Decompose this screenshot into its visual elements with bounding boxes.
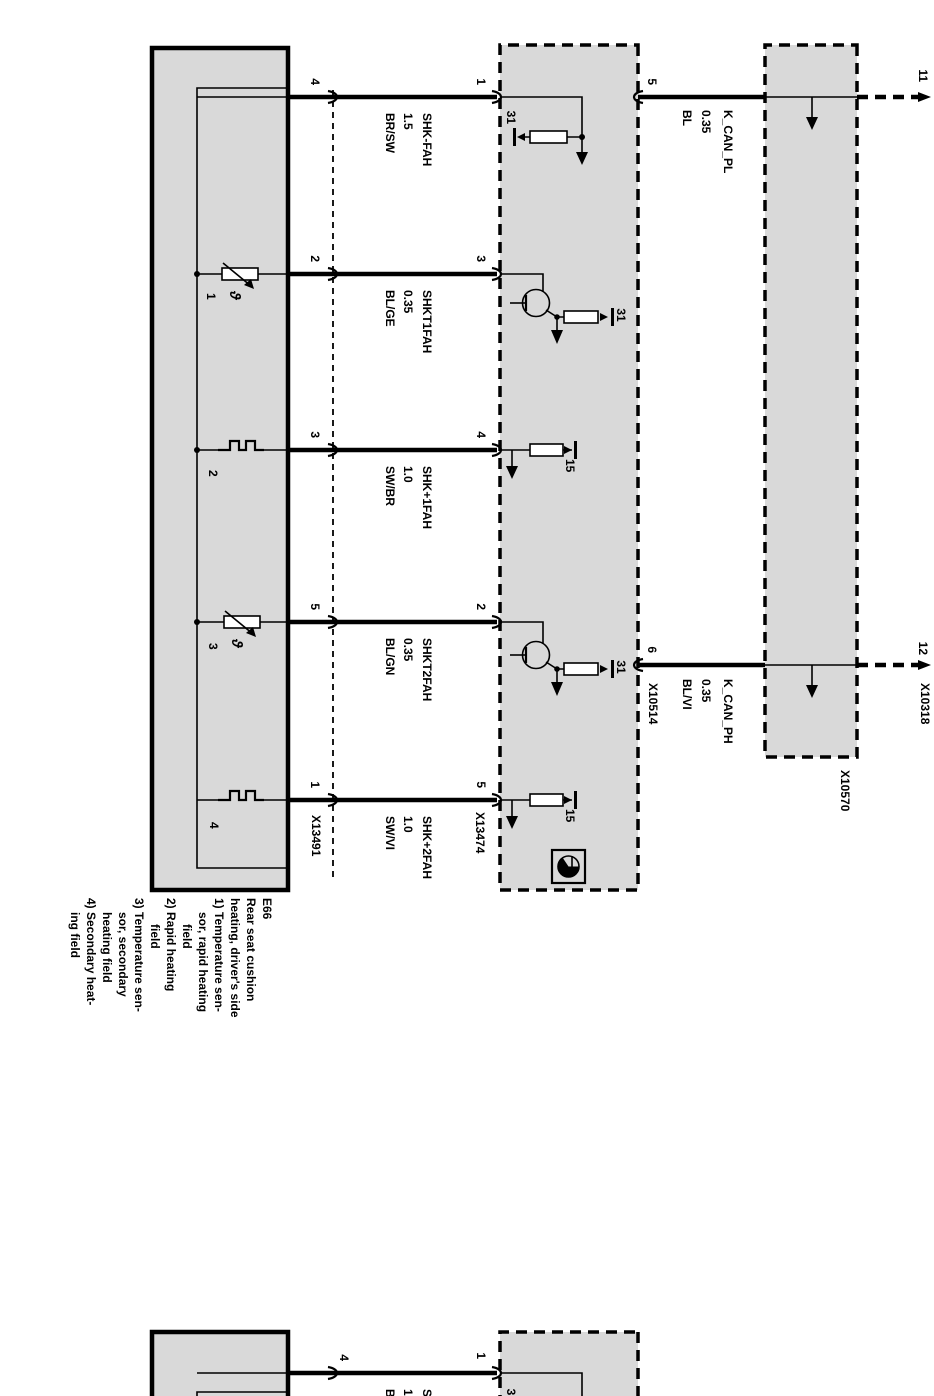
e66-pin-number: 1: [308, 781, 322, 788]
e66-legend: E66 Rear seat cushion heating, driver's …: [68, 898, 274, 1018]
connector-label-x13474: X13474: [473, 812, 487, 854]
wire-name: SHKT1FAH: [420, 290, 434, 353]
terminal-31-label: 31: [504, 111, 518, 125]
legend-line: 3) Temperature sen-: [132, 898, 146, 1012]
legend-line: 2) Rapid heating: [164, 898, 178, 991]
wire-size: 0.35: [401, 638, 415, 662]
connector-label-x13491: X13491: [309, 815, 323, 857]
rotated-diagram-canvas: X10570 ϑ 1 2: [0, 0, 934, 1396]
top-module-box: [765, 45, 857, 757]
wire-size: 0.35: [401, 290, 415, 314]
sheet-ref-number: 12: [916, 642, 930, 656]
wiring-diagram-page: X10570 ϑ 1 2: [0, 0, 934, 1396]
wire-color: BL/GE: [383, 290, 397, 327]
element-number-4: 4: [207, 822, 221, 829]
wire-color: BR/SW: [383, 113, 397, 154]
module-pin-number: 2: [474, 603, 488, 610]
e66-pin-number: 5: [308, 603, 322, 610]
schematic: X10570 ϑ 1 2: [0, 0, 934, 1396]
wire-color: SW/VI: [383, 816, 397, 850]
theta-symbol: ϑ: [226, 290, 243, 301]
legend-line: 1) Temperature sen-: [212, 898, 226, 1012]
wire-name: SHK-FAH: [420, 113, 434, 166]
connector-x13491: X13491: [309, 90, 337, 880]
module-pin-number: 1: [474, 1352, 488, 1359]
legend-line: sor, secondary: [116, 912, 130, 997]
e66-pin-number: 3: [308, 431, 322, 438]
wire-size: 1.5: [401, 1389, 415, 1396]
wire-color: BL/GN: [383, 638, 397, 675]
wire-color: BL/VI: [680, 679, 694, 710]
element-number-2: 2: [206, 470, 220, 477]
wire-size: 1.0: [401, 816, 415, 833]
connector-label-x10570: X10570: [838, 770, 852, 812]
theta-symbol: ϑ: [228, 638, 245, 649]
wire-color: SW/BR: [383, 466, 397, 506]
wire-name: SHK+1FAH: [420, 466, 434, 529]
e66-pin-number: 4: [308, 78, 322, 85]
legend-line: heating field: [100, 912, 114, 983]
terminal-31-label: 31: [614, 308, 628, 322]
legend-line: field: [148, 924, 162, 949]
element-number-1: 1: [204, 293, 218, 300]
module-pin-number: 6: [645, 646, 659, 653]
wire-color: BL: [680, 110, 694, 126]
legend-line: E66: [260, 898, 274, 920]
wire-color: BR/SW: [383, 1389, 397, 1396]
terminal-15-label: 15: [563, 809, 577, 823]
component-box-e66: ϑ 1 2 ϑ 3 4: [152, 48, 288, 890]
legend-line: 4) Secondary heat-: [84, 898, 98, 1005]
wire-name: K_CAN_PL: [721, 110, 735, 173]
legend-line: sor, rapid heating: [196, 912, 210, 1012]
sheet-ref-number: 11: [916, 69, 930, 82]
legend-line: Rear seat cushion: [244, 898, 258, 1001]
module-pin-number: 4: [474, 431, 488, 438]
terminal-31-label: 31: [614, 660, 628, 674]
e66-pin-number: 4: [337, 1354, 351, 1361]
e66-pin-number: 2: [308, 255, 322, 262]
wire-size: 0.35: [699, 110, 713, 134]
module-pin-number: 3: [474, 255, 488, 262]
terminal-15-label: 15: [563, 459, 577, 473]
module-pin-number: 5: [645, 78, 659, 85]
legend-line: field: [180, 924, 194, 949]
wire-name: K_CAN_PH: [721, 679, 735, 744]
wire-size: 1.0: [401, 466, 415, 483]
wire-name: SHK-FAH: [420, 1389, 434, 1396]
connector-label-x10514: X10514: [646, 683, 660, 725]
module-pin-number: 1: [474, 78, 488, 85]
wire-name: SHK+2FAH: [420, 816, 434, 879]
element-number-3: 3: [206, 643, 220, 650]
legend-line: ing field: [68, 912, 82, 958]
partial-passenger-circuit: 4 1 31 SHK-FAH 1.5 BR/SW: [152, 1332, 638, 1396]
terminal-31-label: 31: [504, 1389, 518, 1396]
wire-size: 1.5: [401, 113, 415, 130]
module-pin-number: 5: [474, 781, 488, 788]
connector-label-x10318: X10318: [918, 683, 932, 725]
wire-name: SHKT2FAH: [420, 638, 434, 701]
legend-line: heating, driver's side: [228, 898, 242, 1018]
wire-size: 0.35: [699, 679, 713, 703]
